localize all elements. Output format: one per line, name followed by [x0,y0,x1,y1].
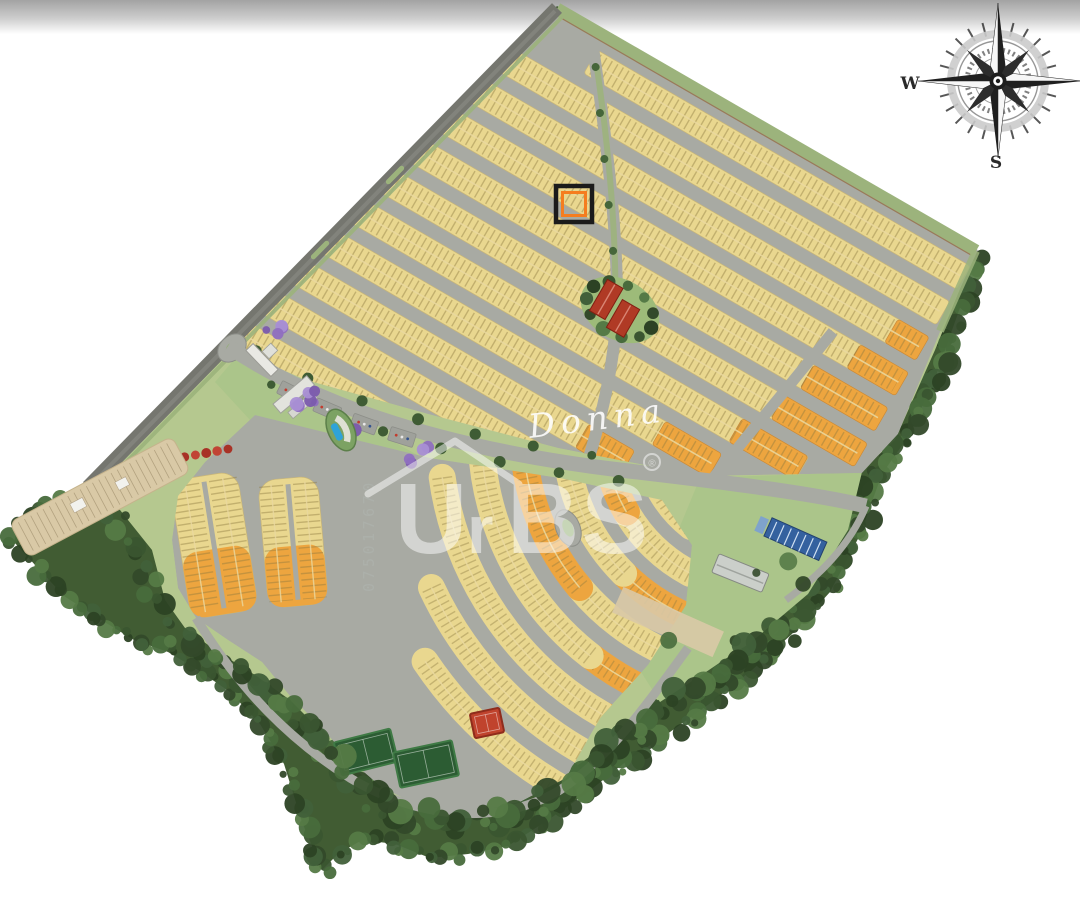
masterplan-image: 075017670 Donna U r BS ® W S [0,0,1080,907]
registered-mark: ® [648,459,656,470]
compass-west-label: W [899,74,920,94]
sports-court [470,708,505,739]
svg-text:U: U [395,463,467,575]
svg-text:BS: BS [507,463,650,575]
compass-south-label: S [990,153,1002,173]
masterplan-svg: 075017670 Donna U r BS ® W S [0,0,1080,907]
map-root [0,0,990,879]
svg-text:r: r [467,492,493,568]
